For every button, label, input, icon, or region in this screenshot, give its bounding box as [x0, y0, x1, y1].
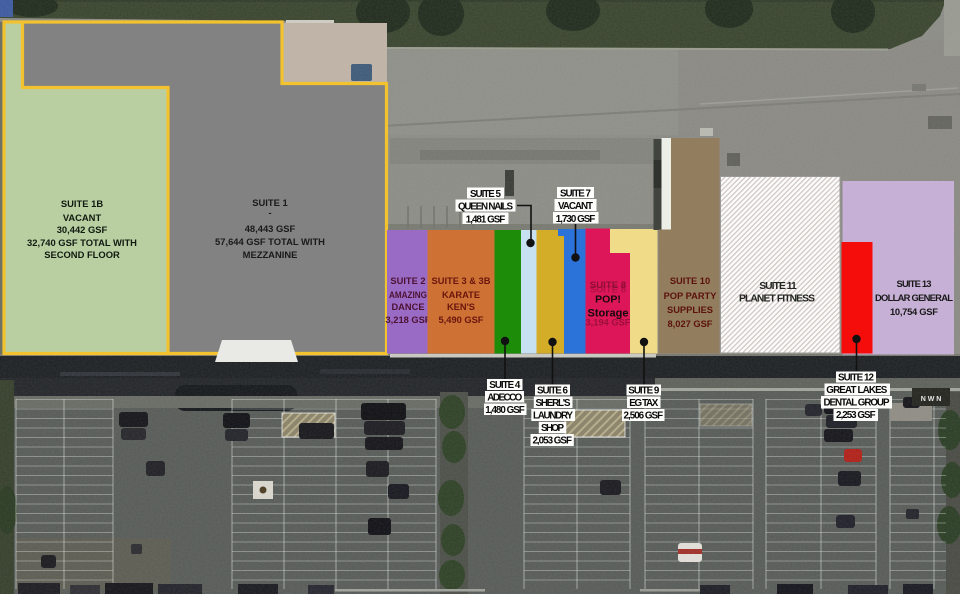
svg-text:SUITE 6: SUITE 6 [537, 386, 569, 397]
svg-text:QUEEN NAILS: QUEEN NAILS [458, 202, 513, 213]
svg-text:SUITE 13: SUITE 13 [897, 278, 932, 289]
svg-text:SUPPLIES: SUPPLIES [667, 305, 713, 315]
svg-text:2,053 GSF: 2,053 GSF [532, 436, 572, 447]
svg-text:ADECCO: ADECCO [487, 393, 522, 404]
svg-text:SECOND FLOOR: SECOND FLOOR [44, 249, 120, 260]
svg-text:32,740 GSF TOTAL WITH: 32,740 GSF TOTAL WITH [27, 237, 137, 248]
svg-text:30,442 GSF: 30,442 GSF [57, 224, 108, 235]
svg-text:SHOP: SHOP [541, 423, 564, 434]
svg-text:SUITE 12: SUITE 12 [838, 373, 875, 384]
svg-text:POP PARTY: POP PARTY [664, 291, 718, 301]
svg-text:48,443 GSF: 48,443 GSF [245, 223, 296, 234]
svg-text:8,027 GSF: 8,027 GSF [668, 319, 713, 329]
svg-text:1,730 GSF: 1,730 GSF [556, 214, 596, 225]
svg-text:SUITE 10: SUITE 10 [670, 276, 710, 286]
svg-text:SUITE 5: SUITE 5 [470, 189, 502, 200]
svg-text:DANCE: DANCE [391, 302, 424, 312]
svg-text:SUITE 2: SUITE 2 [390, 276, 425, 286]
svg-text:1,480 GSF: 1,480 GSF [485, 405, 525, 416]
svg-text:KEN'S: KEN'S [447, 302, 475, 312]
svg-text:3,194 GSF: 3,194 GSF [586, 318, 631, 328]
svg-text:5,490 GSF: 5,490 GSF [439, 315, 484, 325]
svg-text:SUITE 7: SUITE 7 [560, 188, 592, 199]
svg-text:-: - [268, 207, 271, 218]
svg-text:DENTAL GROUP: DENTAL GROUP [824, 398, 890, 409]
svg-text:GREAT LAKES: GREAT LAKES [826, 385, 887, 396]
svg-text:SUITE 3 & 3B: SUITE 3 & 3B [432, 276, 491, 286]
svg-text:VACANT: VACANT [63, 212, 102, 223]
svg-text:SUITE 9: SUITE 9 [628, 386, 660, 397]
svg-text:MEZZANINE: MEZZANINE [243, 249, 298, 260]
svg-text:2,253 GSF: 2,253 GSF [836, 410, 876, 421]
svg-text:SHERL'S: SHERL'S [536, 398, 571, 409]
svg-text:SUITE 4: SUITE 4 [489, 380, 521, 391]
svg-text:3,218 GSF: 3,218 GSF [386, 315, 431, 325]
svg-text:SUITE 1B: SUITE 1B [61, 198, 103, 209]
svg-text:VACANT: VACANT [558, 201, 593, 212]
svg-text:LAUNDRY: LAUNDRY [533, 411, 573, 422]
svg-text:POP!: POP! [595, 294, 621, 306]
svg-text:57,644 GSF TOTAL WITH: 57,644 GSF TOTAL WITH [215, 236, 325, 247]
svg-text:DOLLAR GENERAL: DOLLAR GENERAL [875, 292, 953, 303]
svg-text:10,754 GSF: 10,754 GSF [890, 306, 938, 317]
svg-text:KARATE: KARATE [442, 290, 480, 300]
svg-text:SUITE 11: SUITE 11 [759, 281, 797, 292]
svg-text:PLANET FITNESS: PLANET FITNESS [739, 294, 815, 305]
svg-text:2,506 GSF: 2,506 GSF [624, 411, 664, 422]
svg-text:EG TAX: EG TAX [629, 398, 658, 409]
svg-text:1,481 GSF: 1,481 GSF [466, 214, 506, 225]
svg-text:AMAZING: AMAZING [389, 290, 427, 300]
